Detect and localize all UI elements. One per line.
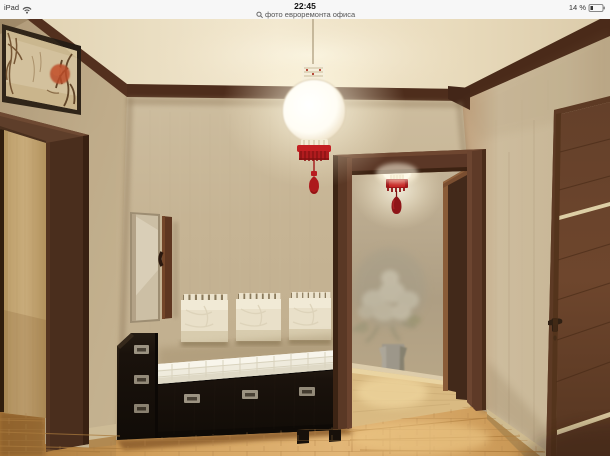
svg-text:iPad: iPad — [4, 3, 19, 12]
svg-text:14 %: 14 % — [569, 3, 586, 12]
svg-text:фото евроремонта офиса: фото евроремонта офиса — [265, 10, 356, 19]
